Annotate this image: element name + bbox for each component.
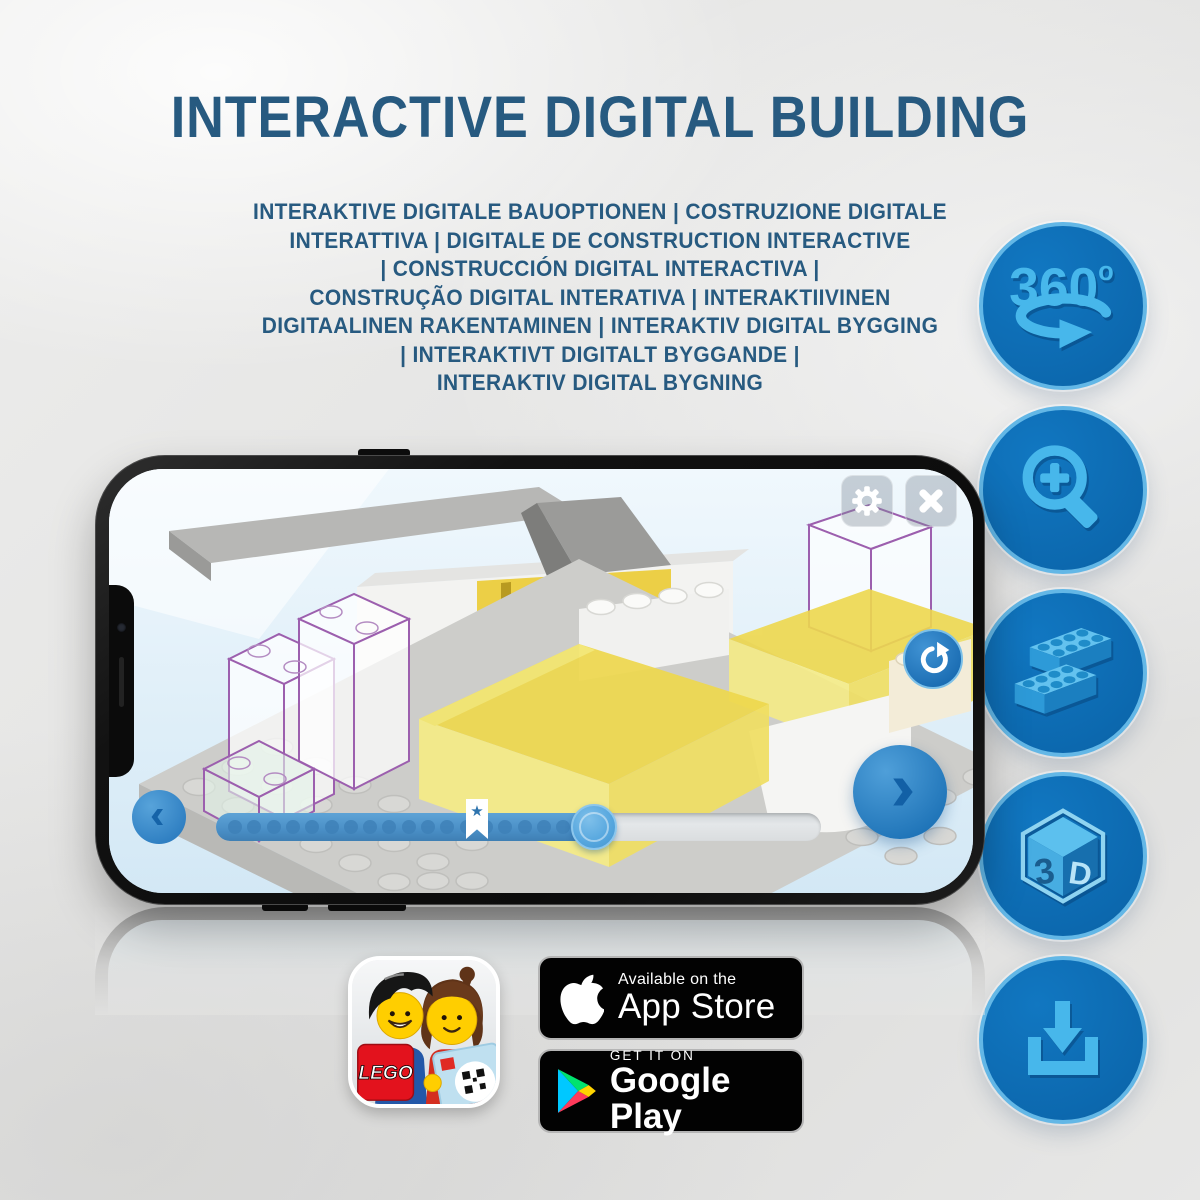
feature-360-badge: 360 o (979, 222, 1147, 390)
svg-text:LEGO: LEGO (358, 1063, 412, 1084)
google-play-text: GET IT ON Google Play (610, 1048, 784, 1135)
zoom-in-icon (1006, 433, 1120, 547)
progress-bar[interactable]: ★ (216, 813, 821, 841)
settings-button[interactable] (841, 475, 893, 527)
close-button[interactable] (905, 475, 957, 527)
camera-dot (117, 623, 126, 632)
subtitle-line: INTERAKTIV DIGITAL BYGNING (42, 369, 1158, 398)
subtitle-line: INTERAKTIVE DIGITALE BAUOPTIONEN | COSTR… (42, 198, 1158, 227)
cube-3d-icon: 3 D (1005, 798, 1121, 914)
google-play-icon (558, 1066, 596, 1116)
app-store-name: App Store (618, 989, 775, 1025)
google-play-name: Google Play (610, 1063, 784, 1135)
rotate-icon (915, 641, 951, 677)
speaker-slit (119, 657, 124, 707)
app-store-text: Available on the App Store (618, 971, 775, 1025)
gear-icon (848, 482, 886, 520)
brick-icon (1004, 617, 1122, 729)
subtitle-line: INTERATTIVA | DIGITALE DE CONSTRUCTION I… (42, 227, 1158, 256)
page-background: { "title": "INTERACTIVE DIGITAL BUILDING… (0, 0, 1200, 1200)
feature-brick-badge (979, 589, 1147, 757)
app-store-badge[interactable]: Available on the App Store (538, 956, 804, 1040)
app-screen: ★ (109, 469, 973, 893)
feature-download-badge (979, 956, 1147, 1124)
feature-zoom-badge (979, 406, 1147, 574)
chevron-left-icon (146, 804, 172, 830)
download-icon (1008, 985, 1118, 1095)
page-title: INTERACTIVE DIGITAL BUILDING (60, 84, 1140, 151)
lego-app-icon[interactable]: LEGO (348, 956, 500, 1108)
chevron-right-icon (878, 770, 922, 814)
google-play-badge[interactable]: GET IT ON Google Play (538, 1049, 804, 1133)
next-step-button[interactable] (853, 745, 947, 839)
previous-step-button[interactable] (132, 790, 186, 844)
phone-notch (109, 585, 134, 777)
apple-icon (558, 970, 604, 1026)
lego-app-artwork: LEGO (352, 960, 496, 1104)
rotate-360-icon: 360 o (999, 245, 1127, 367)
svg-text:o: o (1098, 258, 1114, 286)
rotate-view-button[interactable] (903, 629, 963, 689)
close-icon (913, 483, 949, 519)
progress-fill (216, 813, 608, 841)
slider-knob[interactable] (571, 804, 617, 850)
phone: ★ (95, 455, 985, 905)
feature-3d-badge: 3 D (979, 772, 1147, 940)
